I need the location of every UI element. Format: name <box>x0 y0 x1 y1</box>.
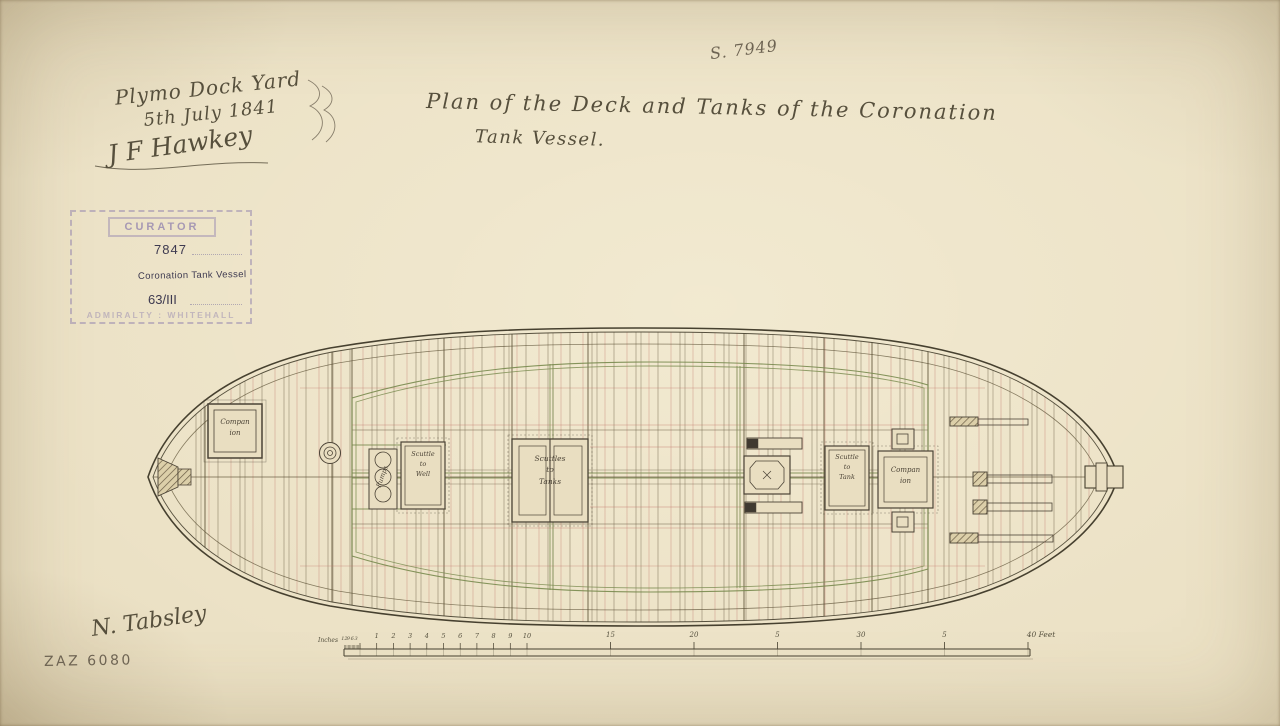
chimney-ring <box>320 443 341 464</box>
scale-foot-tick-label: 2 <box>387 633 399 640</box>
scale-major-tick-label: 20 <box>686 632 702 639</box>
scale-foot-tick-label: 1 <box>371 633 383 640</box>
stamp-leader <box>192 254 242 255</box>
scale-foot-tick-label: 6 <box>454 633 466 640</box>
scale-foot-tick-label: 9 <box>504 633 516 640</box>
scale-foot-tick-label: 7 <box>471 633 483 640</box>
scale-bar <box>344 642 1033 659</box>
stamp-vessel-name: Coronation Tank Vessel <box>138 269 247 282</box>
scale-foot-tick-label: 3 <box>404 633 416 640</box>
scanned-plan-page: S. 7949 Plymo Dock Yard 5th July 1841 J … <box>0 0 1280 726</box>
stamp-number: 7847 <box>154 242 187 257</box>
label-scuttle-to-well: Scuttle to Well <box>402 450 444 479</box>
curator-stamp: CURATOR 7847 Coronation Tank Vessel 63/I… <box>70 210 252 324</box>
scale-end-label: 40 Feet <box>1012 631 1070 639</box>
scale-foot-tick-label: 8 <box>488 633 500 640</box>
stem-head <box>1085 463 1123 491</box>
stamp-box-reference: 63/III <box>148 292 177 307</box>
archive-reference: ZAZ 6080 <box>44 652 154 671</box>
label-scuttle-to-tank: Scuttle to Tank <box>826 453 868 482</box>
scale-major-tick-label: 5 <box>770 632 786 639</box>
label-scuttles-to-tanks: Scuttles to Tanks <box>513 453 587 487</box>
stamp-leader <box>190 304 242 305</box>
label-companion-fore: Compan ion <box>879 465 932 486</box>
scale-foot-tick-label: 4 <box>421 633 433 640</box>
scale-foot-tick-label: 5 <box>438 633 450 640</box>
scale-inches-label: Inches <box>314 638 342 644</box>
scale-foot-tick-label: 10 <box>521 633 533 640</box>
label-companion-aft: Compan ion <box>209 417 261 438</box>
curator-stamp-header: CURATOR <box>108 217 216 237</box>
bow-bitts <box>950 417 1053 543</box>
stamp-footer: ADMIRALTY : WHITEHALL <box>72 310 250 320</box>
scale-major-tick-label: 15 <box>603 632 619 639</box>
scale-inch-tick-label: 3 <box>352 637 360 642</box>
mast-partners <box>744 438 802 513</box>
scale-major-tick-label: 30 <box>853 632 869 639</box>
scale-major-tick-label: 5 <box>937 632 953 639</box>
rudder-head-fitting <box>158 458 191 496</box>
